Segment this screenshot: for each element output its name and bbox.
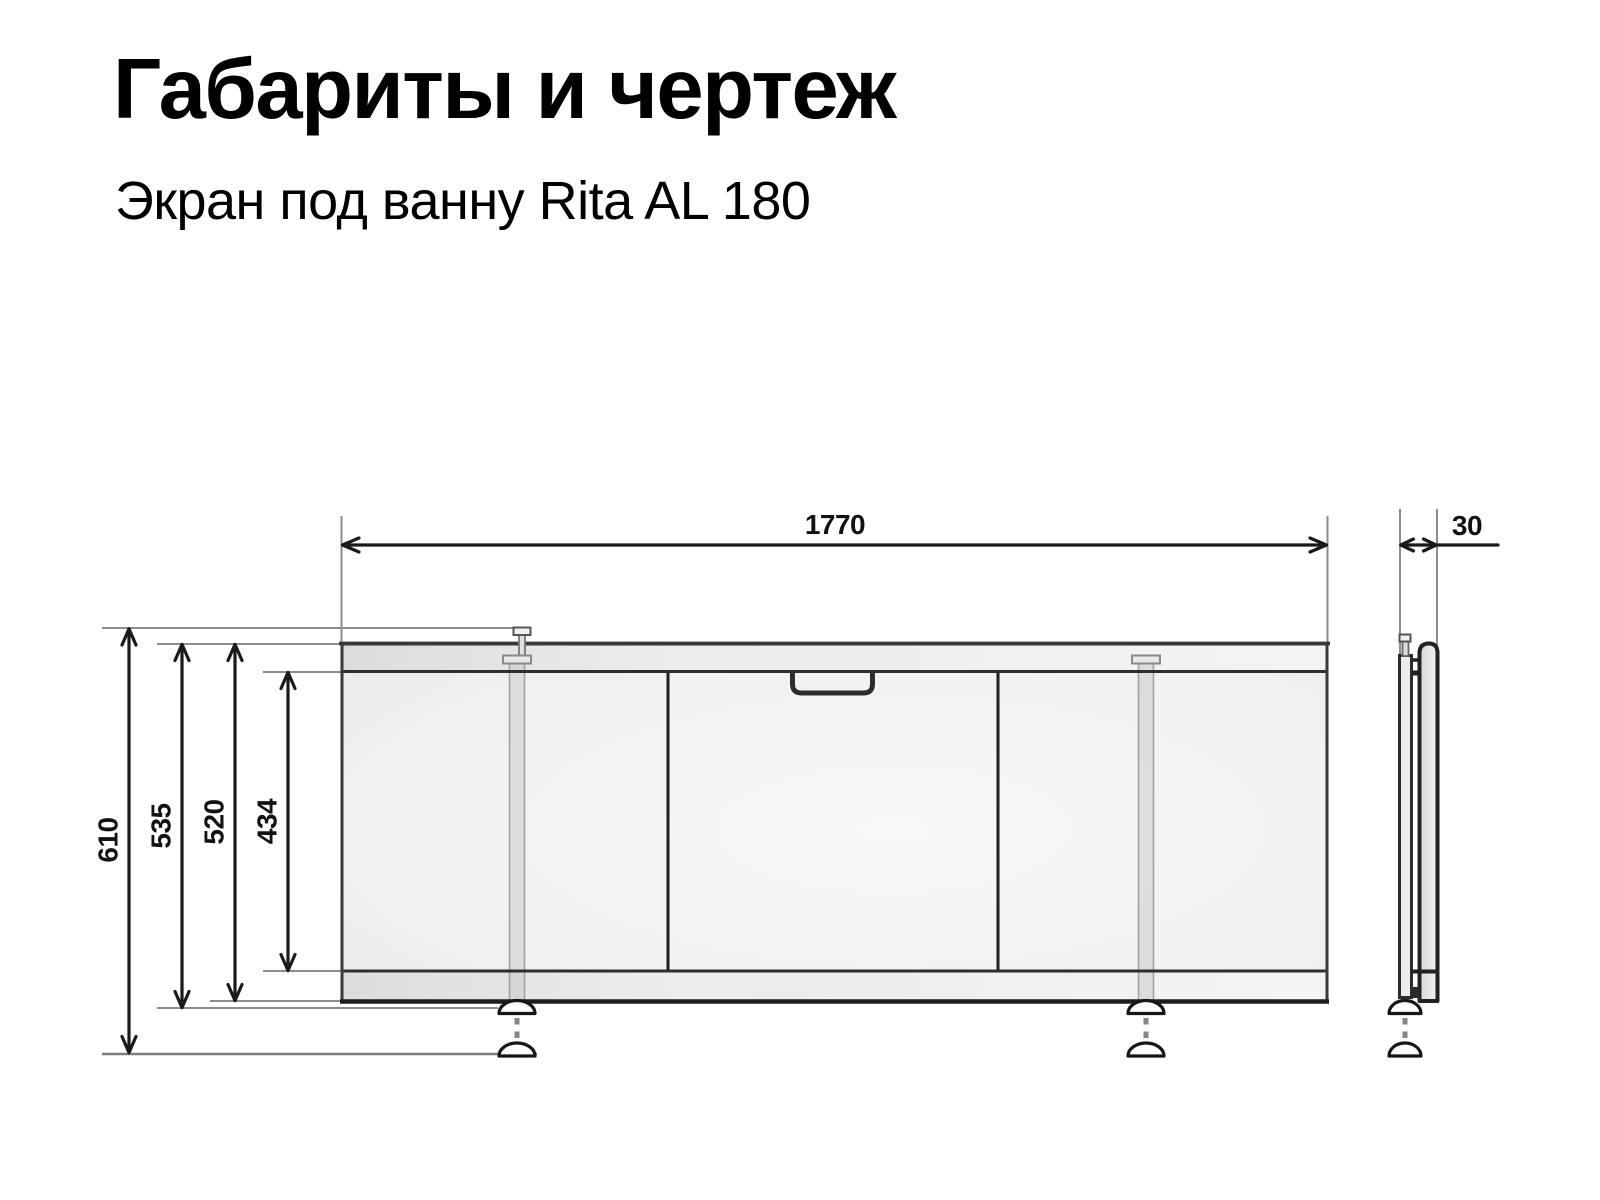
side-foot-lower-cap <box>1389 1043 1421 1056</box>
side-view <box>1389 635 1438 1057</box>
foot-left-lower-cap <box>499 1043 535 1056</box>
technical-drawing: 1770 30 610 535 520 434 <box>0 0 1600 1200</box>
label-height-610: 610 <box>93 817 124 862</box>
bottom-rail <box>342 971 1327 1001</box>
leg-left-tube <box>510 663 525 1002</box>
screen-face <box>342 644 1327 1001</box>
side-profile <box>1420 644 1438 1002</box>
side-screw-cap <box>1400 635 1411 642</box>
dimension-height-535 <box>175 644 189 1007</box>
side-screw-stem <box>1403 641 1409 656</box>
side-leg-bar <box>1400 656 1412 998</box>
dimension-height-520 <box>228 644 242 1000</box>
leg-left-flange <box>503 656 531 664</box>
side-foot-upper-cap <box>1389 1001 1421 1014</box>
top-rail <box>342 644 1327 672</box>
label-height-520: 520 <box>199 799 230 844</box>
dimension-depth-30 <box>1401 539 1498 551</box>
foot-left-upper-cap <box>499 1001 535 1014</box>
label-depth-30: 30 <box>1452 510 1482 541</box>
leg-left-screw-cap <box>514 628 531 636</box>
leg-right-adjuster <box>1132 656 1160 664</box>
leg-left <box>510 663 525 1002</box>
front-view <box>339 628 1330 1057</box>
foot-right-upper-cap <box>1128 1001 1164 1014</box>
dimensions-page: Габариты и чертеж Экран под ванну Rita A… <box>0 0 1600 1200</box>
leg-right-tube <box>1139 663 1154 1002</box>
dimension-width-1770 <box>343 538 1327 552</box>
foot-left <box>499 1001 535 1057</box>
leg-right-flange <box>1132 656 1160 664</box>
foot-right <box>1128 1001 1164 1056</box>
side-foot <box>1389 1001 1421 1057</box>
foot-right-lower-cap <box>1128 1043 1164 1056</box>
label-height-535: 535 <box>146 803 177 848</box>
leg-left-screw-stem <box>519 634 525 657</box>
side-bracket-bottom-2 <box>1412 987 1420 998</box>
label-height-434: 434 <box>252 798 283 844</box>
label-width-1770: 1770 <box>805 509 865 540</box>
dimension-height-610 <box>122 629 136 1053</box>
leg-right <box>1139 663 1154 1002</box>
dimension-height-434 <box>281 672 295 970</box>
